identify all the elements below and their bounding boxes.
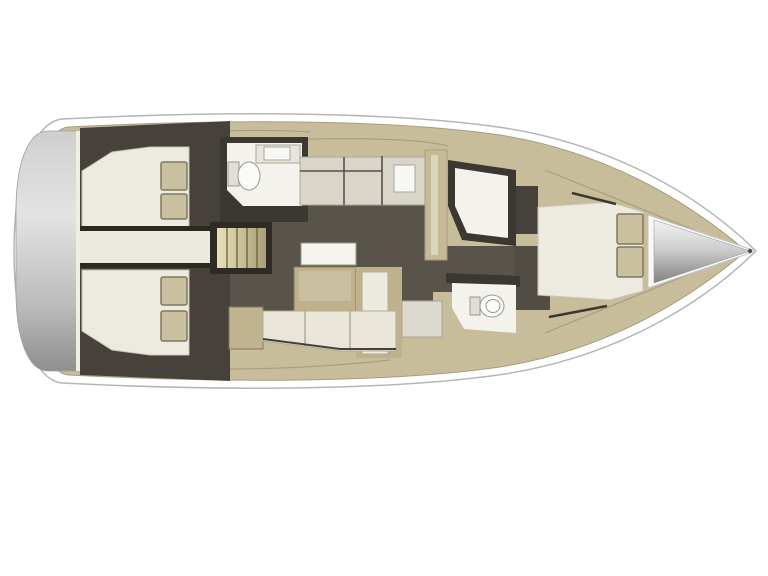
- aft-head-toilet-bowl: [238, 162, 260, 190]
- stern-separator: [76, 131, 80, 371]
- forward-berth-pillow-2: [617, 247, 643, 277]
- yacht-floor-plan: [0, 0, 768, 576]
- settee-end-cabinet: [229, 307, 263, 349]
- forward-cabin: [538, 202, 643, 300]
- aft-cabin-port-pillow-2: [161, 194, 187, 219]
- stern-platform: [16, 131, 78, 371]
- aft-cabin-port: [80, 121, 230, 234]
- aft-head-toilet-tank: [228, 162, 239, 186]
- engine-line-top: [80, 226, 210, 231]
- forward-berth-pillow-1: [617, 214, 643, 244]
- bow-fitting: [748, 249, 752, 253]
- aft-cabin-starboard-pillow-2: [161, 311, 187, 341]
- salon-bench-cushion: [299, 271, 351, 301]
- galley-forward-cabinet: [425, 150, 447, 260]
- galley-sink: [394, 165, 415, 192]
- galley: [300, 156, 426, 205]
- forward-wardrobe: [516, 186, 538, 234]
- salon-table: [301, 243, 356, 265]
- engine-compartment: [80, 226, 210, 268]
- aft-cabin-port-pillow-1: [161, 162, 187, 190]
- stairs-steps: [217, 228, 266, 268]
- companionway-stairs: [210, 222, 272, 274]
- aft-cabin-starboard-pillow-1: [161, 277, 187, 305]
- engine-line-bottom: [80, 263, 210, 268]
- aft-head-sink: [264, 147, 290, 160]
- forward-head-toilet-tank: [470, 297, 480, 315]
- yacht-floor-plan-page: [0, 0, 768, 576]
- aft-head: [220, 137, 308, 222]
- nav-seat: [402, 301, 442, 337]
- engine-hatch: [80, 231, 210, 263]
- cabinet-pillar-inner: [431, 155, 438, 255]
- aft-cabin-starboard: [80, 268, 230, 381]
